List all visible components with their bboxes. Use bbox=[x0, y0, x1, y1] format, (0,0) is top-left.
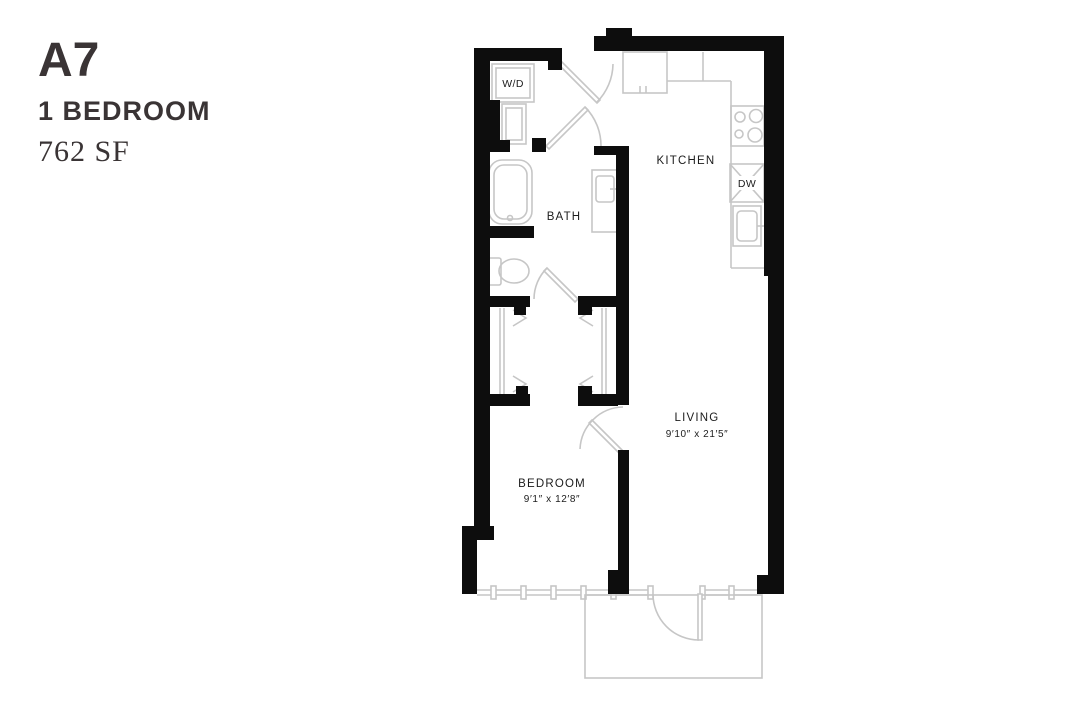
bath-door bbox=[534, 268, 578, 302]
balcony bbox=[585, 595, 762, 678]
bedroom-dimensions: 9′1″ x 12′8″ bbox=[524, 494, 580, 505]
balcony-door bbox=[653, 594, 702, 640]
closets bbox=[500, 308, 606, 394]
bath-vanity bbox=[592, 170, 618, 232]
kitchen-label: KITCHEN bbox=[657, 155, 716, 167]
entry-door bbox=[558, 61, 613, 103]
bath-label: BATH bbox=[547, 211, 582, 223]
kitchen-sink bbox=[733, 206, 764, 246]
bedroom-door bbox=[580, 407, 623, 454]
refrigerator bbox=[623, 52, 667, 93]
bathtub bbox=[489, 160, 532, 224]
linen-shelf bbox=[502, 104, 526, 144]
stove bbox=[731, 106, 764, 146]
living-dimensions: 9′10″ x 21′5″ bbox=[666, 429, 729, 440]
floor-plan: DW bbox=[0, 0, 1080, 720]
bedroom-label: BEDROOM bbox=[518, 478, 586, 490]
floorplan-sheet: A7 1 BEDROOM 762 SF bbox=[0, 0, 1080, 720]
dishwasher-label: DW bbox=[738, 178, 756, 190]
washer-dryer-label: W/D bbox=[502, 78, 524, 90]
vestibule-door bbox=[546, 107, 601, 149]
walls bbox=[462, 28, 784, 594]
living-label: LIVING bbox=[675, 412, 720, 424]
toilet bbox=[488, 258, 529, 285]
dishwasher: DW bbox=[730, 164, 764, 202]
